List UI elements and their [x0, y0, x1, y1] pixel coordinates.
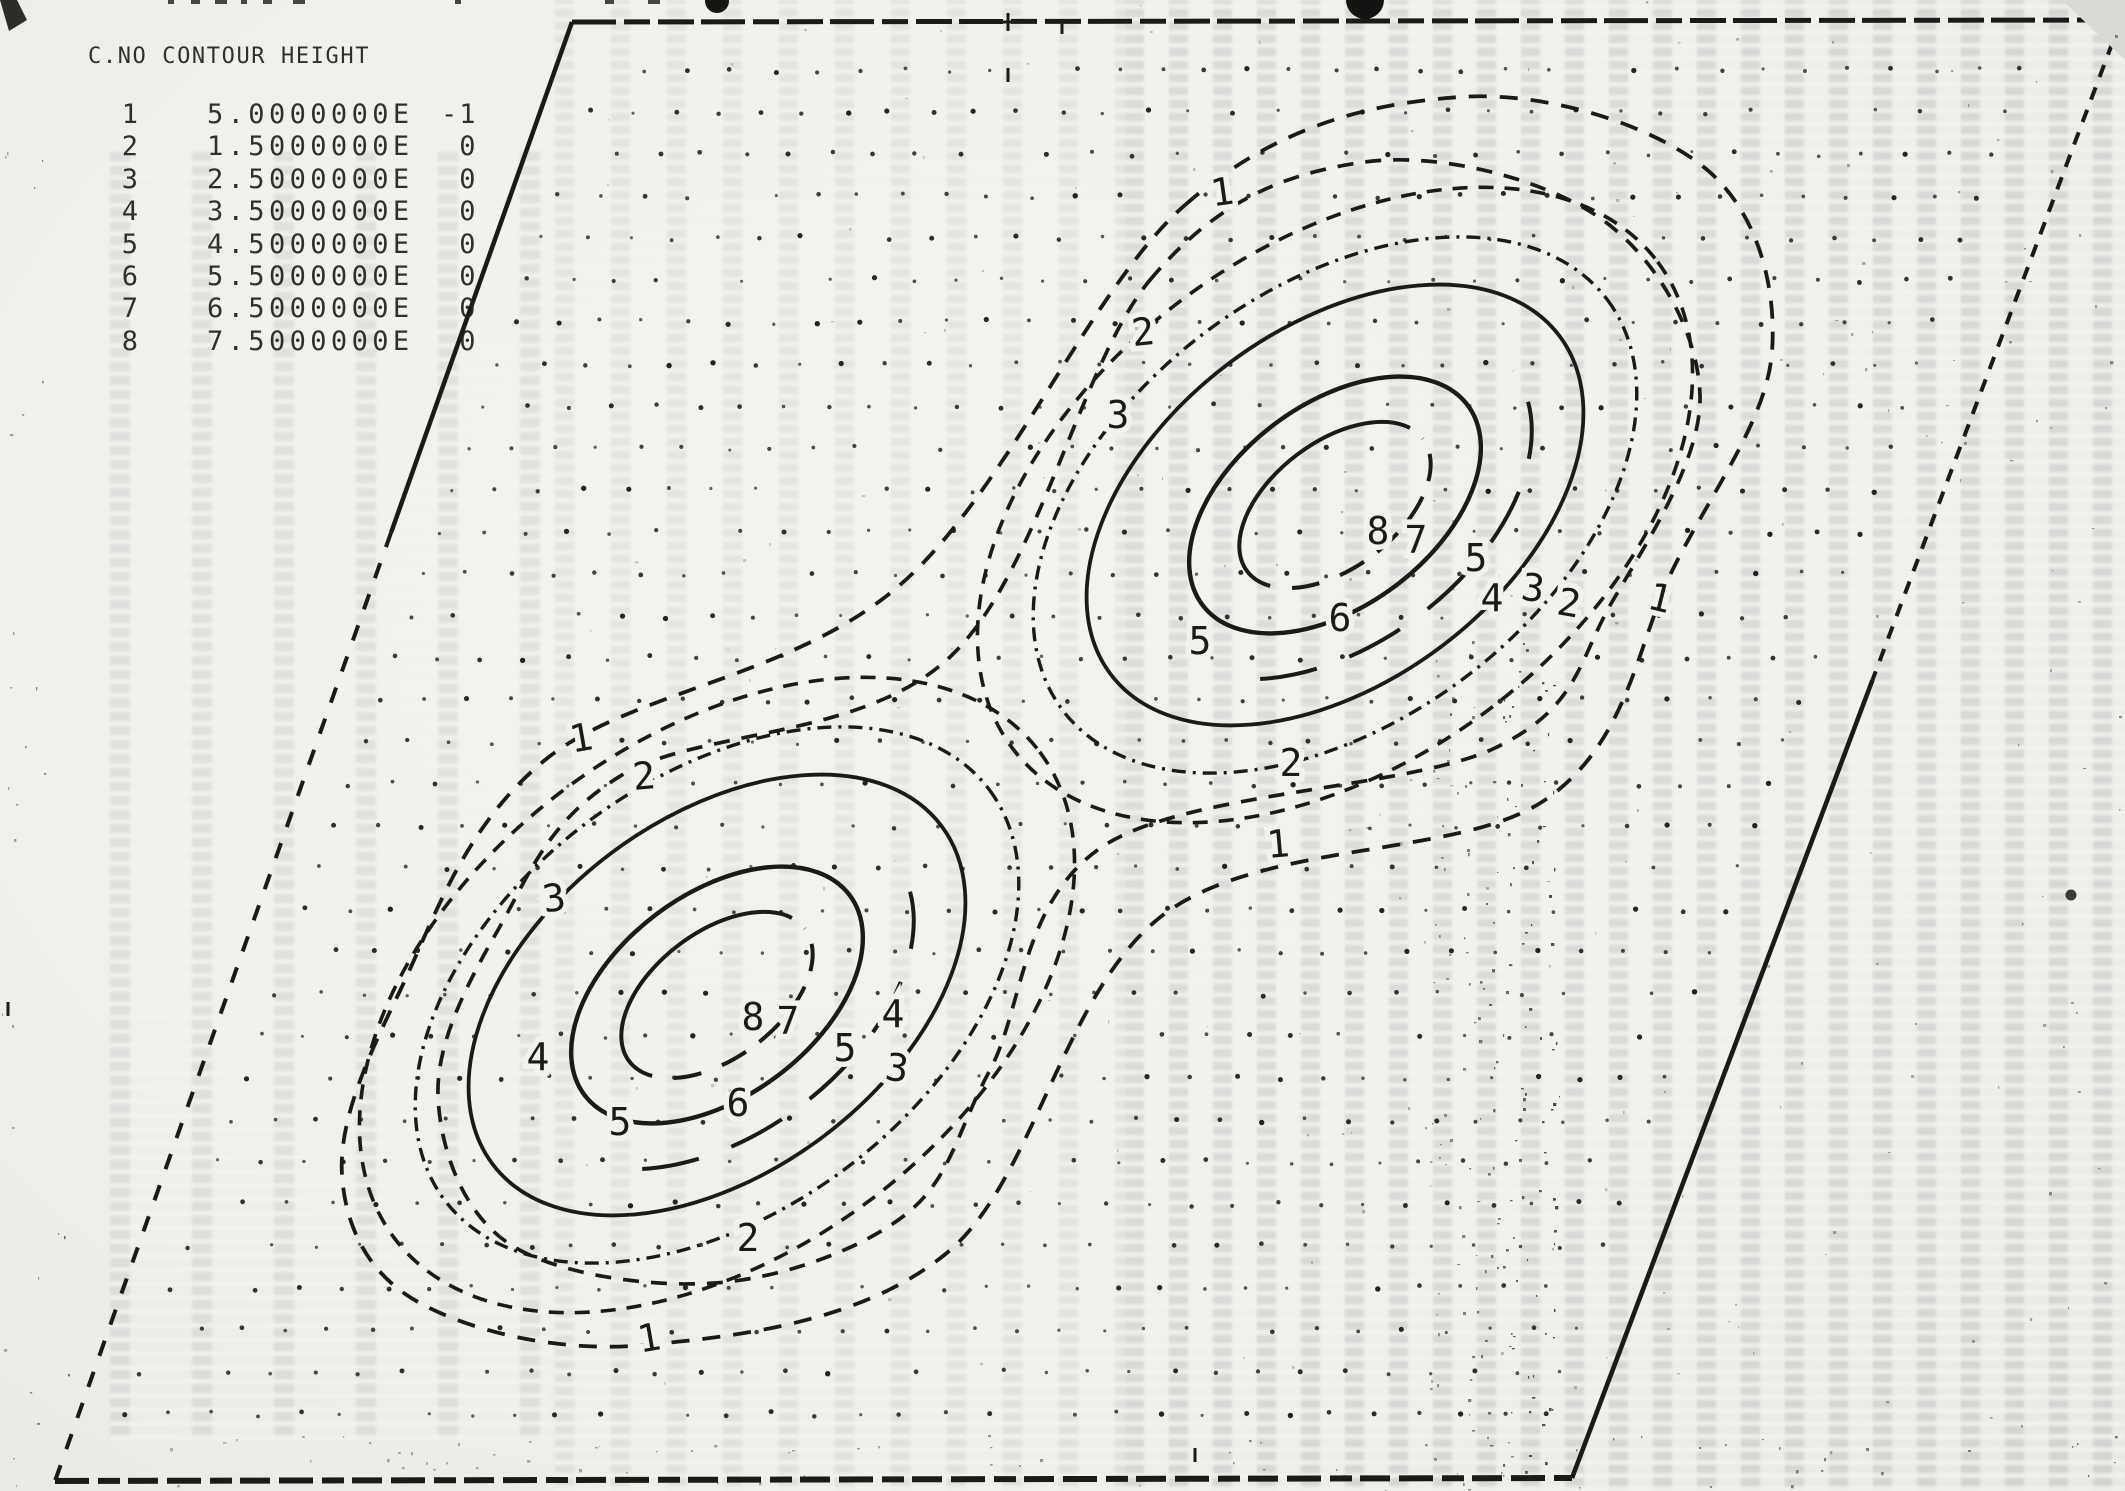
photocopy-speck — [1493, 922, 1495, 924]
contour-label: 6 — [1329, 596, 1352, 640]
grid-dot — [1699, 364, 1704, 369]
grid-dot — [1752, 823, 1757, 828]
photocopy-speck — [1511, 1412, 1512, 1413]
grid-dot — [1122, 530, 1127, 535]
grid-dot — [1132, 990, 1137, 995]
grid-dot — [615, 152, 619, 156]
grid-dot — [1390, 1120, 1394, 1124]
grid-dot — [1740, 616, 1744, 620]
grid-dot — [1057, 1329, 1060, 1332]
photocopy-speck — [1432, 1123, 1434, 1124]
grid-dot — [1708, 823, 1712, 827]
grid-dot — [1049, 738, 1053, 742]
photocopy-speck — [1117, 853, 1119, 855]
grid-dot — [1689, 280, 1693, 284]
photocopy-speck — [1962, 602, 1965, 604]
grid-dot — [301, 1035, 304, 1038]
grid-dot — [1560, 278, 1565, 283]
photocopy-speck — [1117, 1149, 1118, 1152]
grid-dot — [659, 152, 664, 157]
grid-dot — [797, 233, 802, 238]
grid-dot — [1611, 613, 1616, 618]
photocopy-speck — [2018, 744, 2019, 746]
photocopy-speck — [1430, 1185, 1431, 1187]
grid-dot — [1282, 699, 1285, 702]
photocopy-speck — [1437, 1384, 1439, 1387]
photocopy-speck — [1108, 1020, 1109, 1023]
grid-dot — [1044, 152, 1049, 157]
photocopy-speck — [1915, 1023, 1917, 1025]
photocopy-speck — [68, 1374, 70, 1376]
grid-dot — [1518, 1118, 1522, 1122]
contour-legend: C.NO CONTOUR HEIGHT 15.0000000E-121.5000… — [88, 44, 478, 358]
photocopy-speck — [1682, 1195, 1684, 1198]
grid-dot — [553, 445, 557, 449]
grid-dot — [1530, 361, 1534, 365]
photocopy-speck — [1307, 1134, 1309, 1136]
photocopy-speck — [1487, 1437, 1489, 1439]
photocopy-speck — [1537, 840, 1539, 843]
photocopy-speck — [616, 1477, 619, 1480]
grid-dot — [607, 532, 611, 536]
grid-dot — [677, 950, 680, 953]
grid-dot — [1654, 489, 1658, 493]
grid-dot — [685, 68, 690, 73]
grid-dot — [552, 1412, 557, 1417]
grid-dot — [734, 781, 738, 785]
grid-dot — [427, 1287, 431, 1291]
photocopy-speck — [64, 1236, 66, 1239]
grid-dot — [253, 1288, 258, 1293]
grid-dot — [866, 654, 871, 659]
photocopy-speck — [1518, 686, 1519, 688]
photocopy-speck — [1465, 785, 1467, 788]
grid-dot — [1102, 1077, 1106, 1081]
grid-dot — [166, 1410, 170, 1414]
contour-label: 4 — [527, 1035, 550, 1079]
grid-dot — [185, 1246, 189, 1250]
photocopy-speck — [727, 649, 729, 650]
grid-dot — [1252, 784, 1257, 789]
grid-dot — [1062, 110, 1066, 114]
grid-dot — [558, 1158, 563, 1163]
grid-dot — [1532, 1325, 1537, 1330]
photocopy-speck — [1542, 1121, 1545, 1123]
photocopy-speck — [1510, 1200, 1513, 1201]
photocopy-speck — [1437, 778, 1440, 779]
photocopy-speck — [10, 687, 12, 689]
grid-dot — [1168, 406, 1171, 409]
photocopy-speck — [607, 184, 609, 186]
grid-dot — [1305, 739, 1310, 744]
grid-dot — [1434, 1119, 1439, 1124]
grid-dot — [858, 69, 862, 73]
grid-dot — [1904, 277, 1909, 282]
photocopy-speck — [1260, 1442, 1262, 1443]
grid-dot — [966, 614, 969, 617]
photocopy-speck — [1735, 1304, 1737, 1306]
grid-dot — [1859, 152, 1863, 156]
photocopy-speck — [1483, 988, 1485, 990]
photocopy-speck — [1539, 1190, 1542, 1192]
photocopy-speck — [1519, 1159, 1522, 1162]
photocopy-speck — [1946, 405, 1949, 406]
photocopy-speck — [1040, 1459, 1043, 1462]
grid-dot — [476, 780, 479, 783]
photocopy-speck — [886, 1331, 889, 1333]
grid-dot — [1817, 154, 1821, 158]
grid-dot — [1685, 528, 1690, 533]
grid-dot — [1559, 152, 1564, 157]
grid-dot — [433, 782, 438, 787]
grid-dot — [467, 447, 470, 450]
photocopy-speck — [1951, 70, 1953, 72]
grid-dot — [481, 406, 484, 409]
grid-dot — [894, 574, 897, 577]
photocopy-speck — [1545, 1462, 1548, 1465]
grid-dot — [1799, 322, 1803, 326]
grid-dot — [851, 824, 854, 827]
grid-dot — [1503, 1412, 1507, 1416]
grid-dot — [1573, 486, 1578, 491]
legend-row: 87.5000000E0 — [88, 326, 478, 358]
photocopy-speck — [1576, 1449, 1578, 1452]
photocopy-speck — [1399, 897, 1401, 900]
grid-dot — [954, 279, 957, 282]
grid-dot — [1387, 1372, 1391, 1376]
grid-dot — [314, 1370, 318, 1374]
grid-dot — [406, 994, 409, 997]
photocopy-speck — [1753, 1352, 1754, 1355]
grid-dot — [1429, 1372, 1432, 1375]
grid-dot — [1874, 108, 1878, 112]
grid-dot — [757, 236, 762, 241]
grid-dot — [882, 361, 886, 365]
grid-dot — [1603, 277, 1606, 280]
photocopy-speck — [1362, 1210, 1365, 1213]
grid-dot — [1486, 489, 1491, 494]
legend-rows: 15.0000000E-121.5000000E032.5000000E043.… — [88, 99, 478, 358]
grid-dot — [619, 738, 624, 743]
grid-dot — [1049, 865, 1053, 869]
grid-dot — [1458, 192, 1463, 197]
grid-dot — [1303, 991, 1306, 994]
photocopy-speck — [1486, 887, 1489, 890]
grid-dot — [410, 1327, 414, 1331]
grid-dot — [1149, 822, 1154, 827]
grid-dot — [904, 67, 908, 71]
grid-dot — [631, 112, 634, 115]
grid-dot — [1058, 360, 1062, 364]
photocopy-speck — [16, 1485, 17, 1487]
photocopy-speck — [1477, 1201, 1480, 1202]
grid-dot — [1490, 1076, 1493, 1079]
grid-dot — [1415, 321, 1419, 325]
photocopy-speck — [1767, 965, 1770, 968]
grid-dot — [1196, 448, 1200, 452]
photocopy-speck — [1615, 622, 1618, 624]
grid-dot — [767, 447, 771, 451]
photocopy-speck — [590, 630, 592, 632]
grid-dot — [1244, 1286, 1248, 1290]
photocopy-speck — [1469, 654, 1471, 655]
grid-dot — [1502, 322, 1505, 325]
grid-dot — [1014, 360, 1018, 364]
photocopy-speck — [1469, 1168, 1471, 1170]
grid-dot — [1814, 655, 1818, 659]
contour-label: 1 — [634, 1314, 664, 1361]
photocopy-speck — [1637, 809, 1639, 812]
contour-level-1-outer-peanut — [342, 96, 1773, 1346]
photocopy-speck — [1400, 842, 1403, 845]
grid-dot — [297, 1285, 302, 1290]
legend-row: 15.0000000E-1 — [88, 99, 478, 131]
photocopy-speck — [1865, 368, 1867, 371]
legend-row-number: 5 — [88, 229, 138, 260]
grid-dot — [1013, 234, 1018, 239]
photocopy-speck — [42, 160, 43, 162]
photocopy-speck — [5, 156, 6, 158]
grid-dot — [1647, 1120, 1651, 1124]
photocopy-speck — [493, 1454, 496, 1456]
grid-dot — [751, 616, 755, 620]
grid-dot — [1364, 951, 1368, 955]
grid-dot — [827, 530, 831, 534]
grid-dot — [1536, 1074, 1541, 1079]
grid-dot — [1597, 531, 1601, 535]
grid-dot — [1244, 1411, 1249, 1416]
grid-dot — [1117, 1161, 1120, 1164]
grid-dot — [761, 951, 764, 954]
photocopy-speck — [862, 495, 865, 497]
photocopy-speck — [2052, 570, 2053, 572]
grid-dot — [1661, 360, 1665, 364]
photocopy-speck — [1635, 559, 1638, 562]
photocopy-speck — [458, 1443, 460, 1446]
grid-dot — [1728, 404, 1733, 409]
grid-dot — [404, 865, 408, 869]
photocopy-speck — [1623, 1111, 1625, 1114]
photocopy-speck — [1464, 937, 1465, 939]
grid-dot — [864, 908, 868, 912]
grid-dot — [867, 405, 871, 409]
grid-dot — [1315, 1326, 1319, 1330]
grid-dot — [766, 700, 770, 704]
grid-dot — [1947, 151, 1951, 155]
photocopy-speck — [1468, 1399, 1471, 1402]
cut-off-text-fragment — [215, 0, 227, 4]
photocopy-speck — [2030, 1318, 2032, 1321]
contour-label: 2 — [1129, 309, 1156, 355]
grid-dot — [1369, 700, 1373, 704]
grid-dot — [1516, 1371, 1520, 1375]
photocopy-speck — [1452, 697, 1455, 700]
photocopy-speck — [823, 887, 825, 890]
grid-dot — [1186, 109, 1189, 112]
grid-dot — [1045, 1371, 1048, 1374]
grid-dot — [1621, 949, 1625, 953]
grid-dot — [1069, 571, 1073, 575]
grid-dot — [509, 446, 513, 450]
grid-dot — [821, 909, 824, 912]
photocopy-speck — [1574, 1386, 1577, 1389]
grid-dot — [1112, 321, 1117, 326]
photocopy-speck — [731, 63, 733, 65]
grid-dot — [1430, 403, 1434, 407]
photocopy-speck — [1162, 477, 1163, 480]
legend-row-value: 7.5000000E — [207, 326, 414, 357]
grid-dot — [529, 1368, 533, 1372]
grid-dot — [1595, 655, 1600, 660]
grid-dot — [999, 406, 1004, 411]
grid-dot — [810, 571, 815, 576]
grid-dot — [1933, 195, 1937, 199]
grid-dot — [1261, 994, 1266, 999]
photocopy-speck — [402, 1467, 405, 1469]
grid-dot — [1416, 1159, 1420, 1163]
grid-dot — [1224, 738, 1228, 742]
grid-dot — [1488, 1326, 1491, 1329]
grid-dot — [947, 909, 951, 913]
grid-dot — [1662, 236, 1665, 239]
grid-dot — [1179, 616, 1184, 621]
grid-dot — [1558, 1246, 1562, 1250]
photocopy-speck — [1526, 649, 1529, 652]
grid-dot — [730, 1032, 733, 1035]
photocopy-speck — [1486, 903, 1488, 905]
grid-dot — [887, 1199, 892, 1204]
grid-dot — [1049, 993, 1053, 997]
photocopy-speck — [1366, 827, 1369, 829]
photocopy-speck — [788, 1452, 790, 1453]
grid-dot — [464, 696, 469, 701]
grid-dot — [974, 1202, 979, 1207]
photocopy-speck — [1644, 398, 1645, 399]
grid-dot — [923, 864, 928, 869]
grid-dot — [555, 192, 559, 196]
photocopy-speck — [1554, 1309, 1555, 1312]
grid-dot — [1174, 991, 1178, 995]
grid-dot — [1504, 1161, 1508, 1165]
grid-dot — [1350, 864, 1354, 868]
grid-dot — [588, 108, 593, 113]
photocopy-speck — [1470, 1379, 1472, 1381]
photocopy-speck — [1472, 1430, 1475, 1432]
photocopy-speck — [1533, 1375, 1534, 1378]
photocopy-speck — [529, 1441, 532, 1443]
photocopy-speck — [1452, 588, 1455, 590]
grid-dot — [726, 322, 731, 327]
grid-dot — [1756, 444, 1760, 448]
legend-row-number: 1 — [88, 99, 138, 130]
grid-dot — [340, 1287, 344, 1291]
grid-dot — [927, 361, 932, 366]
grid-dot — [509, 696, 513, 700]
grid-dot — [912, 151, 916, 155]
grid-dot — [604, 1036, 608, 1040]
grid-dot — [945, 318, 948, 321]
grid-dot — [348, 909, 352, 913]
grid-dot — [770, 1286, 774, 1290]
grid-dot — [1375, 196, 1379, 200]
photocopy-speck — [426, 1462, 428, 1465]
grid-dot — [1458, 1284, 1462, 1288]
grid-dot — [1473, 280, 1476, 283]
legend-row-exponent: -1 — [414, 99, 478, 130]
grid-dot — [400, 1368, 405, 1373]
grid-dot — [1458, 1411, 1463, 1416]
grid-dot — [1440, 363, 1444, 367]
grid-dot — [1433, 154, 1437, 158]
grid-dot — [1000, 277, 1003, 280]
grid-dot — [575, 991, 578, 994]
grid-dot — [1436, 990, 1439, 993]
photocopy-speck — [1501, 1352, 1504, 1355]
photocopy-speck — [1510, 883, 1512, 886]
grid-dot — [974, 235, 978, 239]
grid-dot — [969, 364, 972, 367]
photocopy-speck — [2119, 716, 2122, 718]
photocopy-speck — [1497, 1223, 1500, 1224]
grid-dot — [1740, 489, 1745, 494]
grid-dot — [1355, 363, 1360, 368]
grid-dot — [1580, 695, 1584, 699]
photocopy-speck — [1529, 1411, 1531, 1413]
grid-dot — [1430, 1245, 1433, 1248]
grid-dot — [861, 1160, 865, 1164]
contour-label: 2 — [631, 753, 658, 799]
photocopy-speck — [1554, 1243, 1555, 1246]
grid-dot — [612, 279, 616, 283]
grid-dot — [372, 948, 377, 953]
grid-dot — [652, 1372, 657, 1377]
photocopy-speck — [1789, 731, 1791, 733]
grid-dot — [901, 192, 905, 196]
photocopy-speck — [1553, 1198, 1556, 1201]
grid-dot — [1241, 699, 1245, 703]
grid-dot — [216, 1158, 219, 1161]
grid-dot — [1286, 67, 1290, 71]
photocopy-speck — [1341, 511, 1343, 513]
grid-dot — [697, 150, 702, 155]
grid-dot — [1103, 1329, 1106, 1332]
grid-dot — [122, 1412, 127, 1417]
grid-dot — [1142, 1327, 1145, 1330]
photocopy-speck — [1532, 861, 1534, 864]
grid-dot — [1303, 1243, 1307, 1247]
photocopy-speck — [888, 1298, 891, 1301]
grid-dot — [1584, 317, 1589, 322]
photocopy-speck — [1472, 1356, 1475, 1358]
grid-dot — [1366, 570, 1371, 575]
photocopy-speck — [1038, 442, 1040, 444]
grid-dot — [1783, 615, 1787, 619]
grid-dot — [859, 1413, 862, 1416]
grid-dot — [1385, 152, 1390, 157]
grid-dot — [612, 1242, 617, 1247]
grid-dot — [992, 910, 997, 915]
grid-dot — [740, 1370, 743, 1373]
grid-dot — [926, 613, 929, 616]
grid-dot — [597, 1288, 601, 1292]
grid-dot — [270, 1243, 273, 1246]
grid-dot — [283, 1329, 287, 1333]
grid-dot — [1803, 69, 1807, 73]
photocopy-speck — [1229, 1452, 1231, 1453]
grid-dot — [1637, 784, 1642, 789]
photocopy-speck — [1504, 699, 1505, 702]
grid-dot — [1073, 193, 1078, 198]
